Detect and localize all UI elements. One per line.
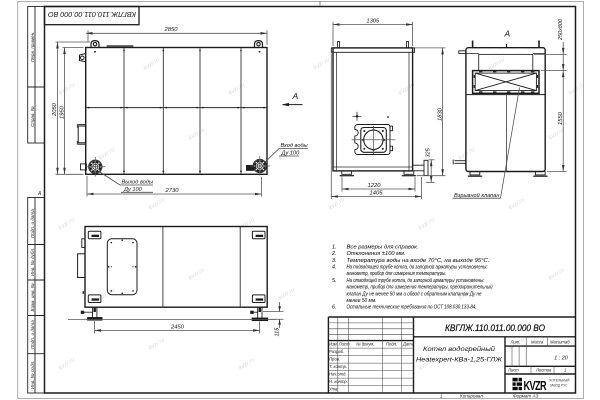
svg-text:Температура воды на входе 70°С: Температура воды на входе 70°С, на выход… bbox=[347, 258, 490, 264]
svg-text:1: 1 bbox=[440, 394, 443, 399]
svg-text:Копировал: Копировал bbox=[460, 394, 483, 399]
svg-text:Н. контр.: Н. контр. bbox=[329, 379, 348, 384]
svg-text:325: 325 bbox=[426, 147, 432, 157]
svg-text:2850: 2850 bbox=[164, 27, 179, 33]
svg-text:2050: 2050 bbox=[52, 102, 58, 117]
svg-text:№ докум.: № докум. bbox=[356, 342, 374, 347]
svg-text:Разраб.: Разраб. bbox=[329, 349, 344, 354]
svg-text:1830: 1830 bbox=[437, 107, 443, 121]
svg-text:1405: 1405 bbox=[370, 191, 384, 197]
svg-text:Ду 100: Ду 100 bbox=[281, 150, 301, 156]
svg-text:1220: 1220 bbox=[368, 183, 382, 189]
svg-text:5.: 5. bbox=[332, 278, 337, 284]
svg-text:На отводящей трубе котла, до з: На отводящей трубе котла, до запорной ар… bbox=[347, 277, 485, 284]
svg-text:Масса: Масса bbox=[531, 340, 544, 345]
svg-text:1 : 20: 1 : 20 bbox=[554, 356, 568, 362]
svg-text:А: А bbox=[504, 29, 511, 39]
svg-text:1.: 1. bbox=[332, 244, 337, 250]
svg-text:Остальные технические требован: Остальные технические требования по ОСТ … bbox=[347, 305, 477, 311]
svg-text:Инв. № подл.: Инв. № подл. bbox=[30, 360, 35, 389]
svg-text:Инв. № дубл.: Инв. № дубл. bbox=[30, 248, 35, 276]
svg-text:3.: 3. bbox=[332, 258, 337, 264]
svg-text:250х800: 250х800 bbox=[558, 18, 564, 41]
svg-text:А: А bbox=[292, 91, 299, 101]
svg-text:Лит.: Лит. bbox=[510, 340, 521, 345]
svg-text:Нач.отд.: Нач.отд. bbox=[329, 372, 347, 377]
svg-text:115: 115 bbox=[275, 327, 281, 337]
svg-text:Пров.: Пров. bbox=[329, 357, 340, 362]
svg-text:KVZR: KVZR bbox=[524, 379, 547, 393]
svg-text:Котел водогрейный: Котел водогрейный bbox=[423, 345, 495, 353]
svg-text:Лист: Лист bbox=[507, 368, 519, 373]
svg-text:1: 1 bbox=[564, 368, 566, 373]
svg-text:манометр, прибор для измерения: манометр, прибор для измерения температу… bbox=[347, 284, 493, 291]
svg-text:4.: 4. bbox=[332, 265, 337, 271]
svg-text:Формат А3: Формат А3 bbox=[513, 394, 539, 399]
svg-text:На подводящей трубе котла, до: На подводящей трубе котла, до запорной а… bbox=[347, 264, 488, 271]
svg-text:Масштаб: Масштаб bbox=[550, 340, 570, 345]
svg-text:Все размеры для справок.: Все размеры для справок. bbox=[347, 244, 419, 250]
svg-text:манометр, прибор для измерения: манометр, прибор для измерения температу… bbox=[347, 271, 447, 277]
svg-text:1950: 1950 bbox=[59, 105, 65, 119]
svg-text:Т. контр.: Т. контр. bbox=[329, 364, 347, 369]
svg-text:КОТЕЛЬНЫЙ: КОТЕЛЬНЫЙ bbox=[550, 379, 571, 383]
svg-text:Взам. инв. №: Взам. инв. № bbox=[30, 283, 35, 311]
svg-text:менее 50 мм.: менее 50 мм. bbox=[347, 298, 377, 304]
svg-text:Выход воды: Выход воды bbox=[122, 179, 153, 185]
svg-text:Подп.: Подп. bbox=[386, 342, 397, 347]
svg-text:Утв.: Утв. bbox=[329, 387, 339, 392]
svg-text:Листов: Листов bbox=[535, 368, 552, 373]
svg-text:2730: 2730 bbox=[165, 188, 180, 194]
svg-text:6.: 6. bbox=[332, 305, 337, 311]
svg-text:КВГЛЖ.110.011.00.000 ВО: КВГЛЖ.110.011.00.000 ВО bbox=[445, 323, 545, 333]
svg-text:Справ. №: Справ. № bbox=[30, 106, 35, 127]
svg-text:А: А bbox=[37, 191, 42, 197]
svg-text:1550: 1550 bbox=[558, 111, 564, 125]
svg-text:Вход воды: Вход воды bbox=[281, 143, 308, 149]
svg-text:1305: 1305 bbox=[366, 18, 380, 24]
svg-text:клапан Ду не менее 50 мм и обв: клапан Ду не менее 50 мм и обвод с обрат… bbox=[347, 291, 482, 297]
svg-text:ЗАВОД РУС: ЗАВОД РУС bbox=[550, 384, 569, 388]
svg-text:Подп. и дата: Подп. и дата bbox=[30, 209, 35, 238]
svg-text:Подп. и дата: Подп. и дата bbox=[30, 320, 35, 349]
svg-text:Heatexpert-КВа-1,25-ГЛЖ: Heatexpert-КВа-1,25-ГЛЖ bbox=[416, 357, 503, 364]
svg-text:Лист: Лист bbox=[338, 342, 350, 347]
svg-text:КВГЛЖ.110.011.00.000 ВО: КВГЛЖ.110.011.00.000 ВО bbox=[48, 10, 136, 19]
svg-text:2450: 2450 bbox=[170, 325, 185, 331]
svg-text:Перв. примен.: Перв. примен. bbox=[30, 31, 35, 62]
svg-text:Изм: Изм bbox=[329, 342, 337, 347]
svg-text:Дата: Дата bbox=[402, 342, 415, 347]
svg-text:2.: 2. bbox=[331, 251, 337, 257]
svg-text:Отклонения ±100 мм.: Отклонения ±100 мм. bbox=[347, 251, 406, 257]
